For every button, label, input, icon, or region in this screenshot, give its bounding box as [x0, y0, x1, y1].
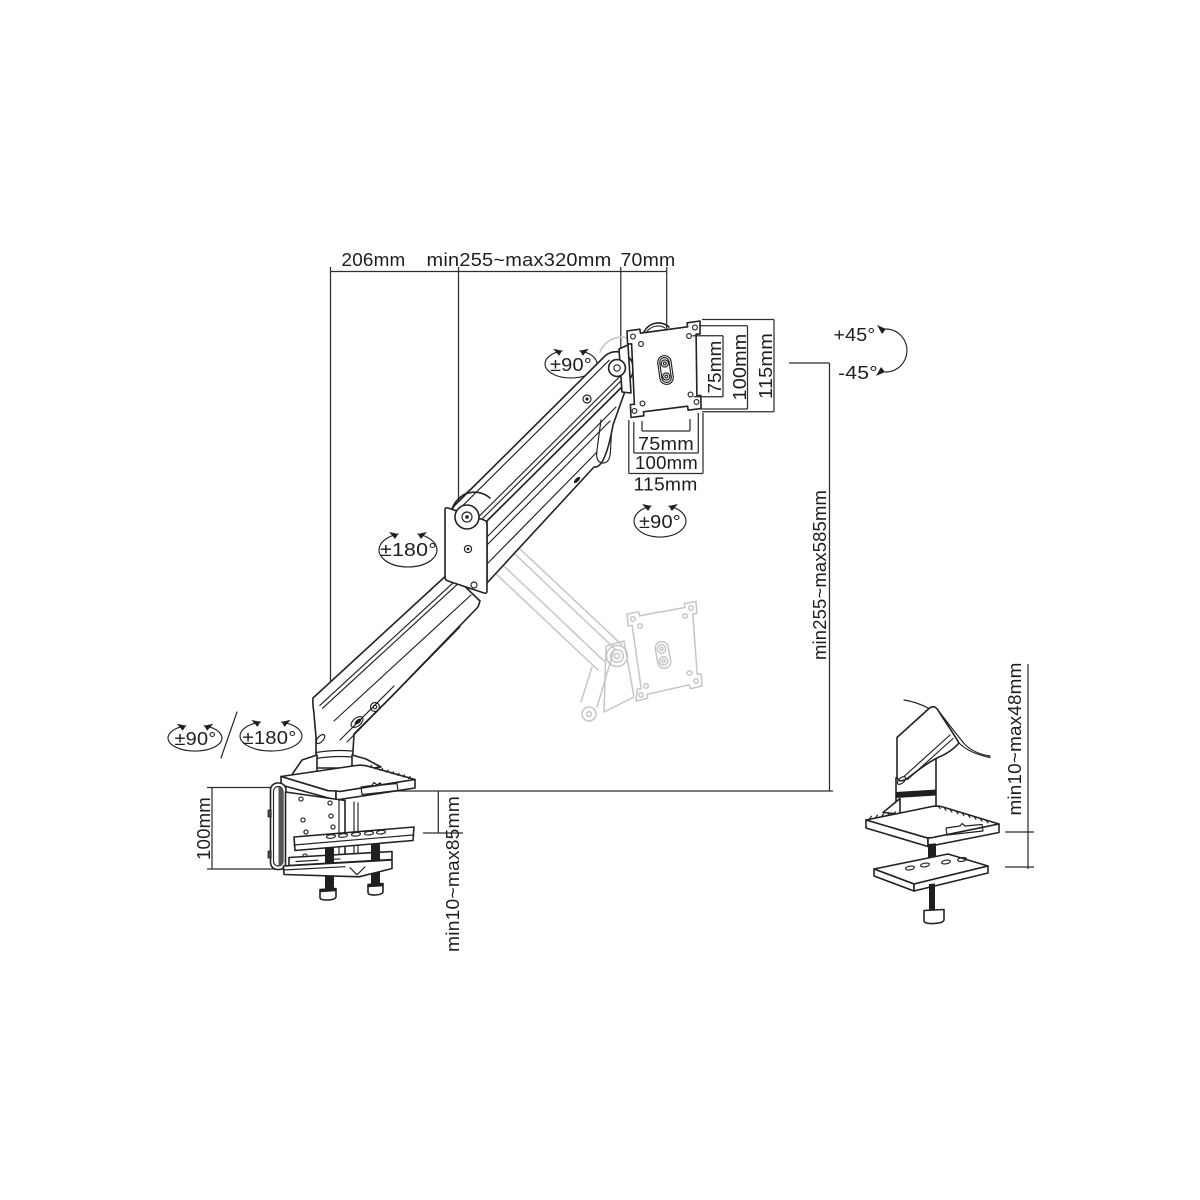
svg-text:115mm: 115mm [756, 333, 776, 399]
svg-text:115mm: 115mm [634, 475, 698, 495]
svg-text:-45°: -45° [838, 363, 878, 383]
svg-text:±180°: ±180° [380, 540, 437, 560]
svg-text:min10~max85mm: min10~max85mm [443, 796, 463, 952]
svg-text:±90°: ±90° [639, 512, 681, 532]
svg-text:75mm: 75mm [638, 434, 694, 454]
svg-text:206mm: 206mm [342, 250, 406, 270]
svg-text:min10~max48mm: min10~max48mm [1005, 663, 1025, 816]
svg-text:100mm: 100mm [635, 453, 698, 473]
svg-text:70mm: 70mm [621, 250, 676, 270]
svg-text:±180°: ±180° [243, 728, 297, 748]
svg-text:min255~max320mm: min255~max320mm [427, 250, 612, 270]
svg-text:min255~max585mm: min255~max585mm [810, 490, 830, 660]
svg-text:±90°: ±90° [550, 355, 592, 375]
svg-text:±90°: ±90° [175, 729, 217, 749]
svg-text:100mm: 100mm [194, 797, 214, 860]
svg-text:75mm: 75mm [705, 341, 725, 394]
svg-text:+45°: +45° [834, 325, 876, 345]
